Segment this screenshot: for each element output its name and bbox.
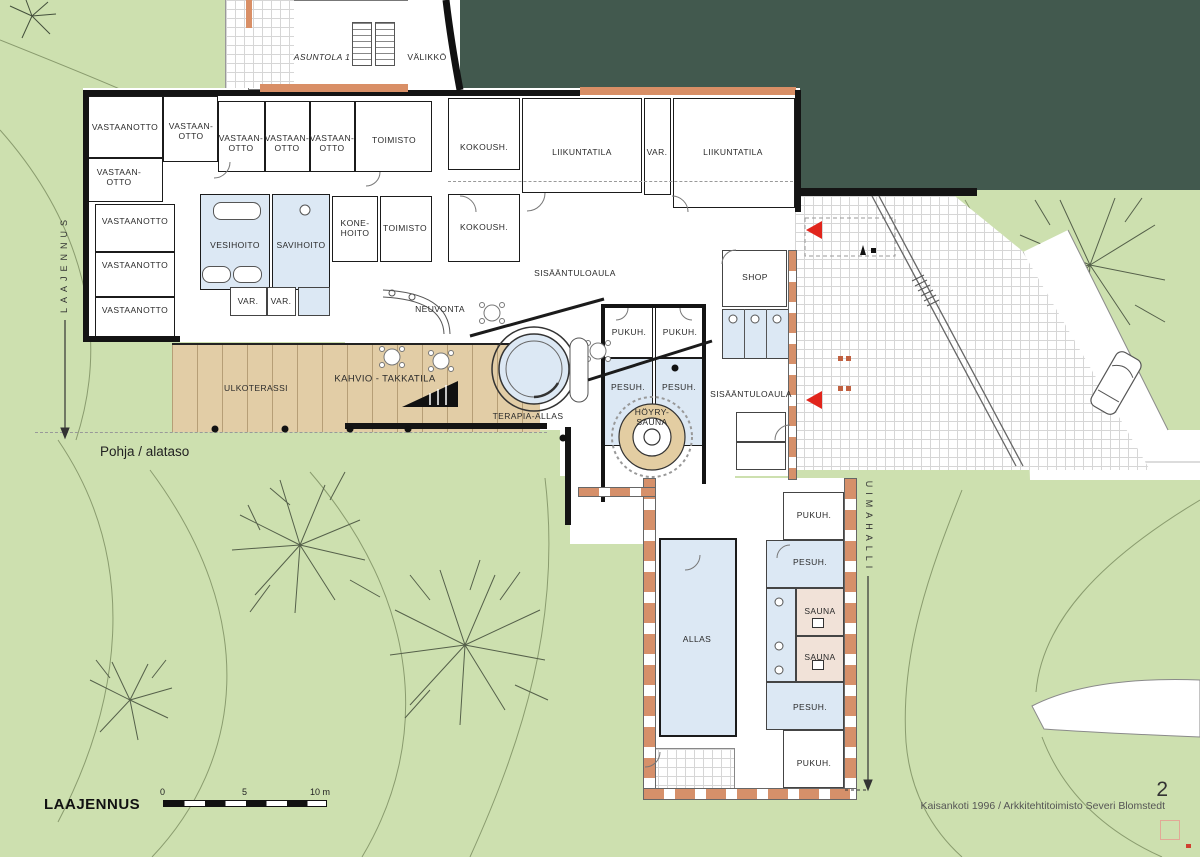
cafe-stair-wedge [402,381,458,407]
entrance-arrow-upper [806,221,822,239]
door-arcs [214,162,790,767]
room-label: VASTAAN-OTTO [166,121,216,141]
room-label: VASTAAN-OTTO [218,133,264,153]
scale-tick-10: 10 m [310,787,330,797]
therapy-pool [492,327,588,411]
room-label: VAR. [268,296,294,306]
room-label: VAR. [643,147,671,157]
room-label: PESUH. [788,702,832,712]
room-label: ASUNTOLA 1 [282,52,362,62]
room-label: SISÄÄNTULOAULA [520,268,630,278]
room-label: VASTAANOTTO [99,260,171,270]
room-label: PESUH. [788,557,832,567]
room-label: PUKUH. [792,510,836,520]
room-label: LIIKUNTATILA [693,147,773,157]
room-label: VASTAAN-OTTO [264,133,310,153]
room-label: HÖYRY-SAUNA [630,407,674,427]
room-label: PUKUH. [792,758,836,768]
drawing-title: Pohja / alataso [100,444,189,459]
room-label: SISÄÄNTULOAULA [696,389,806,399]
room-label: VASTAANOTTO [89,122,161,132]
pool-hall-side-label: UIMAHALLI [862,471,874,583]
room-label: PUKUH. [658,327,702,337]
room-label: TERAPIA-ALLAS [482,411,574,421]
room-label: KOKOUSH. [455,222,513,232]
room-label: VÄLIKKÖ [399,52,455,62]
room-label: KAHVIO - TAKKATILA [315,373,455,384]
room-label: ALLAS [675,634,719,644]
room-label: LIIKUNTATILA [542,147,622,157]
scale-tick-0: 0 [160,787,165,797]
credit-line: Kaisankoti 1996 / Arkkitehtitoimisto Sev… [865,800,1165,812]
expansion-side-label: LAAJENNUS [59,209,71,319]
title-block-square [1160,820,1180,840]
scale-bar [163,800,327,807]
room-label: PESUH. [657,382,701,392]
room-label: KONE-HOITO [334,218,376,238]
room-label: SAUNA [799,652,841,662]
room-label: PESUH. [606,382,650,392]
room-label: TOIMISTO [378,223,432,233]
room-label: SAVIHOITO [271,240,331,250]
room-label: VASTAAN-OTTO [94,167,144,187]
site-mark-red [1186,844,1191,848]
room-label: KOKOUSH. [455,142,513,152]
room-label: SHOP [735,272,775,282]
parked-car [1088,349,1143,417]
room-label: TOIMISTO [364,135,424,145]
room-label: SAUNA [799,606,841,616]
room-label: VASTAAN-OTTO [309,133,355,153]
curved-wall [446,0,460,90]
floor-plan-canvas: VASTAANOTTO VASTAAN-OTTO VASTAAN-OTTO VA… [0,0,1200,857]
room-label: VASTAANOTTO [99,305,171,315]
scale-tick-5: 5 [242,787,247,797]
room-label: VESIHOITO [205,240,265,250]
sheet-number: 2 [1128,778,1168,802]
room-label: VASTAANOTTO [99,216,171,226]
expansion-title: LAAJENNUS [44,796,140,813]
entrance-arrow-lower [806,391,822,409]
room-label: PUKUH. [607,327,651,337]
room-label: ULKOTERASSI [211,383,301,393]
room-label: NEUVONTA [409,304,471,314]
room-label: VAR. [234,296,262,306]
